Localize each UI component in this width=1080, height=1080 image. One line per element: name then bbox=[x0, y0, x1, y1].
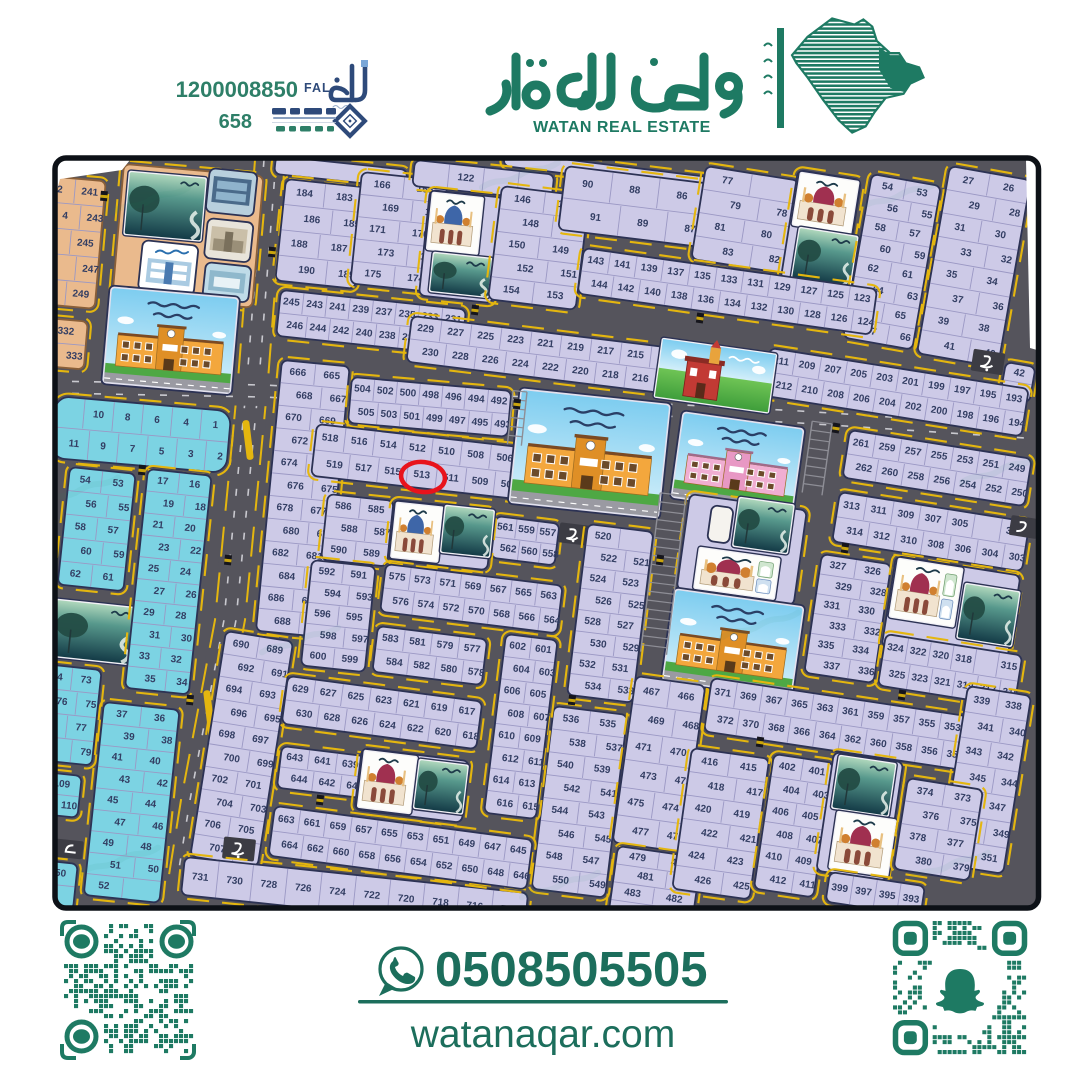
svg-text:56: 56 bbox=[85, 499, 98, 511]
svg-text:18: 18 bbox=[194, 502, 207, 514]
svg-text:569: 569 bbox=[464, 580, 482, 593]
svg-text:594: 594 bbox=[324, 588, 342, 601]
svg-text:573: 573 bbox=[413, 574, 431, 587]
svg-text:332: 332 bbox=[57, 326, 75, 338]
svg-text:571: 571 bbox=[439, 577, 457, 590]
svg-text:614: 614 bbox=[492, 774, 510, 787]
svg-text:651: 651 bbox=[432, 834, 450, 847]
svg-text:30: 30 bbox=[180, 633, 193, 645]
svg-text:52: 52 bbox=[98, 880, 111, 892]
svg-text:531: 531 bbox=[611, 662, 629, 675]
svg-text:625: 625 bbox=[347, 690, 365, 703]
svg-text:249: 249 bbox=[72, 288, 90, 300]
svg-text:241: 241 bbox=[81, 186, 99, 198]
svg-text:535: 535 bbox=[599, 718, 617, 731]
svg-text:584: 584 bbox=[385, 656, 403, 669]
svg-text:508: 508 bbox=[467, 449, 485, 462]
svg-text:603: 603 bbox=[538, 667, 556, 680]
svg-text:576: 576 bbox=[392, 596, 410, 609]
svg-text:512: 512 bbox=[408, 442, 426, 455]
svg-text:580: 580 bbox=[440, 663, 458, 676]
svg-text:730: 730 bbox=[226, 875, 244, 888]
svg-text:150: 150 bbox=[508, 239, 526, 252]
svg-text:678: 678 bbox=[276, 502, 294, 515]
svg-text:500: 500 bbox=[399, 387, 417, 399]
svg-text:664: 664 bbox=[280, 839, 298, 852]
svg-text:609: 609 bbox=[523, 733, 541, 746]
svg-text:35: 35 bbox=[144, 673, 157, 685]
svg-text:629: 629 bbox=[291, 683, 309, 696]
svg-text:57: 57 bbox=[107, 525, 120, 537]
svg-text:41: 41 bbox=[111, 752, 124, 764]
svg-text:670: 670 bbox=[285, 412, 303, 425]
svg-text:75: 75 bbox=[85, 699, 98, 711]
svg-text:183: 183 bbox=[335, 192, 353, 205]
svg-text:421: 421 bbox=[739, 833, 757, 846]
svg-text:590: 590 bbox=[330, 544, 348, 557]
svg-text:43: 43 bbox=[118, 774, 131, 786]
svg-text:25: 25 bbox=[147, 563, 160, 575]
svg-text:622: 622 bbox=[406, 723, 424, 736]
svg-text:50: 50 bbox=[147, 864, 160, 876]
svg-text:617: 617 bbox=[458, 705, 476, 718]
svg-text:595: 595 bbox=[345, 611, 363, 624]
svg-text:615: 615 bbox=[522, 801, 540, 814]
svg-text:630: 630 bbox=[295, 708, 313, 721]
svg-text:672: 672 bbox=[291, 435, 309, 448]
svg-text:620: 620 bbox=[434, 726, 452, 739]
svg-text:674: 674 bbox=[280, 457, 298, 470]
svg-text:538: 538 bbox=[568, 737, 586, 750]
svg-text:597: 597 bbox=[351, 633, 369, 646]
svg-text:549: 549 bbox=[588, 879, 606, 892]
svg-text:627: 627 bbox=[319, 687, 337, 700]
svg-text:649: 649 bbox=[458, 837, 476, 850]
svg-text:149: 149 bbox=[552, 244, 570, 257]
svg-text:501: 501 bbox=[403, 411, 421, 423]
svg-text:37: 37 bbox=[116, 709, 129, 721]
svg-text:605: 605 bbox=[529, 688, 547, 701]
svg-text:544: 544 bbox=[551, 805, 569, 818]
svg-text:1200008850: 1200008850 bbox=[176, 77, 298, 102]
svg-text:44: 44 bbox=[144, 798, 157, 810]
svg-text:665: 665 bbox=[323, 370, 341, 383]
svg-text:89: 89 bbox=[636, 218, 649, 230]
svg-text:86: 86 bbox=[676, 190, 689, 202]
svg-text:654: 654 bbox=[409, 856, 427, 869]
svg-text:616: 616 bbox=[496, 797, 514, 810]
svg-text:16: 16 bbox=[188, 479, 201, 491]
svg-text:688: 688 bbox=[274, 616, 292, 629]
svg-text:624: 624 bbox=[378, 719, 396, 732]
svg-text:229: 229 bbox=[417, 323, 435, 336]
svg-text:621: 621 bbox=[402, 698, 420, 711]
svg-text:426: 426 bbox=[694, 874, 712, 887]
svg-text:525: 525 bbox=[627, 599, 645, 612]
svg-text:492: 492 bbox=[490, 395, 508, 407]
svg-text:242: 242 bbox=[332, 325, 350, 338]
svg-text:656: 656 bbox=[384, 853, 402, 866]
svg-text:40: 40 bbox=[149, 756, 162, 768]
svg-text:78: 78 bbox=[775, 207, 788, 220]
svg-text:110: 110 bbox=[60, 800, 78, 813]
svg-text:548: 548 bbox=[545, 850, 563, 863]
svg-text:527: 527 bbox=[616, 620, 634, 633]
svg-text:578: 578 bbox=[467, 666, 485, 679]
svg-text:623: 623 bbox=[375, 694, 393, 707]
svg-text:22: 22 bbox=[190, 545, 203, 557]
svg-text:526: 526 bbox=[594, 595, 612, 608]
svg-text:watanaqar.com: watanaqar.com bbox=[410, 1013, 676, 1056]
svg-text:728: 728 bbox=[260, 879, 278, 892]
svg-text:122: 122 bbox=[457, 172, 475, 185]
svg-text:558: 558 bbox=[541, 548, 559, 561]
svg-text:514: 514 bbox=[379, 439, 397, 452]
svg-text:608: 608 bbox=[507, 708, 525, 721]
svg-text:224: 224 bbox=[511, 358, 529, 371]
svg-text:166: 166 bbox=[373, 179, 391, 192]
svg-text:422: 422 bbox=[700, 827, 718, 840]
svg-text:607: 607 bbox=[533, 711, 551, 724]
svg-text:513: 513 bbox=[413, 469, 431, 482]
svg-text:240: 240 bbox=[355, 327, 373, 340]
svg-text:415: 415 bbox=[739, 761, 757, 774]
svg-text:59: 59 bbox=[113, 549, 126, 561]
svg-text:536: 536 bbox=[562, 713, 580, 726]
svg-text:559: 559 bbox=[518, 524, 536, 537]
svg-text:502: 502 bbox=[376, 385, 394, 397]
svg-text:499: 499 bbox=[426, 413, 444, 425]
svg-text:599: 599 bbox=[341, 654, 359, 667]
svg-text:574: 574 bbox=[417, 599, 435, 612]
svg-text:650: 650 bbox=[461, 863, 479, 876]
svg-text:724: 724 bbox=[328, 886, 346, 899]
svg-text:510: 510 bbox=[438, 445, 456, 458]
svg-text:227: 227 bbox=[447, 326, 465, 339]
svg-text:11: 11 bbox=[68, 438, 80, 450]
svg-text:17: 17 bbox=[157, 476, 170, 488]
svg-text:659: 659 bbox=[329, 820, 347, 833]
svg-text:663: 663 bbox=[277, 814, 295, 827]
svg-text:243: 243 bbox=[306, 299, 324, 312]
svg-text:645: 645 bbox=[509, 844, 527, 857]
svg-text:216: 216 bbox=[631, 372, 649, 385]
svg-text:19: 19 bbox=[162, 498, 175, 510]
svg-text:33: 33 bbox=[138, 651, 151, 663]
svg-text:522: 522 bbox=[600, 553, 618, 566]
svg-text:684: 684 bbox=[278, 570, 296, 583]
svg-text:45: 45 bbox=[107, 794, 120, 806]
svg-text:528: 528 bbox=[584, 616, 602, 629]
svg-text:618: 618 bbox=[462, 730, 480, 743]
svg-text:151: 151 bbox=[560, 268, 578, 281]
svg-text:81: 81 bbox=[714, 221, 727, 234]
svg-text:146: 146 bbox=[513, 194, 531, 207]
svg-text:561: 561 bbox=[496, 521, 514, 534]
svg-text:568: 568 bbox=[493, 608, 511, 621]
svg-text:720: 720 bbox=[397, 893, 415, 906]
svg-text:666: 666 bbox=[289, 367, 307, 380]
svg-text:23: 23 bbox=[158, 542, 171, 554]
svg-text:653: 653 bbox=[406, 831, 424, 844]
svg-text:532: 532 bbox=[578, 658, 596, 671]
svg-text:219: 219 bbox=[567, 341, 585, 354]
svg-text:226: 226 bbox=[481, 354, 499, 367]
svg-text:217: 217 bbox=[597, 345, 615, 358]
svg-text:604: 604 bbox=[512, 663, 530, 676]
svg-text:657: 657 bbox=[355, 824, 373, 837]
svg-text:519: 519 bbox=[326, 459, 344, 472]
svg-text:647: 647 bbox=[483, 841, 501, 854]
svg-text:516: 516 bbox=[350, 435, 368, 448]
svg-text:726: 726 bbox=[294, 882, 312, 895]
svg-text:55: 55 bbox=[118, 502, 131, 514]
svg-text:39: 39 bbox=[123, 731, 136, 743]
svg-text:28: 28 bbox=[175, 610, 188, 622]
svg-text:148: 148 bbox=[522, 217, 540, 230]
svg-text:643: 643 bbox=[286, 752, 304, 765]
svg-text:585: 585 bbox=[367, 504, 385, 517]
svg-text:575: 575 bbox=[388, 571, 406, 584]
svg-text:530: 530 bbox=[589, 638, 607, 651]
svg-text:184: 184 bbox=[296, 187, 314, 200]
svg-text:38: 38 bbox=[161, 735, 174, 747]
svg-text:173: 173 bbox=[377, 247, 395, 260]
svg-text:498: 498 bbox=[422, 389, 440, 401]
svg-text:543: 543 bbox=[588, 809, 606, 822]
svg-text:628: 628 bbox=[323, 712, 341, 725]
svg-text:560: 560 bbox=[520, 545, 538, 558]
svg-text:529: 529 bbox=[622, 642, 640, 655]
svg-text:591: 591 bbox=[350, 569, 368, 582]
svg-text:425: 425 bbox=[732, 880, 750, 893]
svg-text:416: 416 bbox=[701, 756, 719, 769]
svg-text:547: 547 bbox=[582, 855, 600, 868]
svg-text:187: 187 bbox=[330, 242, 348, 255]
svg-text:505: 505 bbox=[357, 407, 375, 419]
svg-text:602: 602 bbox=[509, 640, 527, 653]
svg-text:77: 77 bbox=[75, 722, 88, 734]
svg-text:245: 245 bbox=[76, 237, 94, 249]
svg-text:32: 32 bbox=[170, 654, 183, 666]
svg-text:644: 644 bbox=[290, 773, 308, 786]
svg-text:612: 612 bbox=[501, 753, 519, 766]
svg-text:577: 577 bbox=[463, 643, 481, 656]
svg-text:419: 419 bbox=[733, 808, 751, 821]
svg-text:221: 221 bbox=[537, 338, 555, 351]
svg-text:FAL: FAL bbox=[304, 81, 331, 95]
svg-text:88: 88 bbox=[629, 184, 642, 196]
svg-text:534: 534 bbox=[584, 681, 602, 694]
svg-text:175: 175 bbox=[364, 268, 382, 281]
svg-text:626: 626 bbox=[351, 715, 369, 728]
svg-text:47: 47 bbox=[114, 817, 127, 829]
svg-text:565: 565 bbox=[514, 586, 532, 599]
svg-text:34: 34 bbox=[176, 677, 189, 689]
svg-text:610: 610 bbox=[498, 730, 516, 743]
svg-text:567: 567 bbox=[489, 583, 507, 596]
svg-text:WATAN REAL ESTATE: WATAN REAL ESTATE bbox=[533, 119, 711, 136]
svg-text:593: 593 bbox=[355, 591, 373, 604]
svg-text:566: 566 bbox=[518, 611, 536, 624]
svg-text:660: 660 bbox=[332, 846, 350, 859]
svg-text:572: 572 bbox=[442, 602, 460, 615]
svg-text:36: 36 bbox=[153, 713, 166, 725]
svg-text:509: 509 bbox=[471, 475, 489, 488]
svg-text:648: 648 bbox=[487, 866, 505, 879]
svg-text:223: 223 bbox=[507, 334, 525, 347]
svg-text:494: 494 bbox=[467, 393, 485, 405]
svg-text:613: 613 bbox=[518, 777, 536, 790]
svg-text:546: 546 bbox=[557, 828, 575, 841]
svg-text:10: 10 bbox=[92, 409, 104, 421]
svg-text:29: 29 bbox=[143, 607, 156, 619]
svg-text:668: 668 bbox=[295, 390, 313, 403]
svg-text:667: 667 bbox=[329, 393, 347, 406]
svg-text:49: 49 bbox=[102, 837, 115, 849]
svg-text:592: 592 bbox=[318, 566, 336, 579]
svg-text:540: 540 bbox=[556, 759, 574, 772]
svg-text:523: 523 bbox=[622, 577, 640, 590]
svg-text:246: 246 bbox=[286, 320, 304, 333]
svg-text:333: 333 bbox=[65, 350, 83, 362]
svg-text:680: 680 bbox=[282, 525, 300, 538]
svg-text:682: 682 bbox=[272, 547, 290, 560]
svg-text:583: 583 bbox=[381, 633, 399, 646]
svg-text:582: 582 bbox=[413, 660, 431, 673]
svg-text:586: 586 bbox=[334, 500, 352, 513]
svg-text:42: 42 bbox=[156, 778, 169, 790]
svg-text:243: 243 bbox=[86, 213, 104, 225]
svg-text:495: 495 bbox=[471, 417, 489, 429]
svg-text:611: 611 bbox=[527, 756, 545, 769]
svg-text:601: 601 bbox=[534, 643, 552, 656]
svg-text:570: 570 bbox=[467, 605, 485, 618]
svg-text:222: 222 bbox=[541, 361, 559, 374]
svg-text:642: 642 bbox=[318, 777, 336, 790]
svg-text:518: 518 bbox=[321, 432, 339, 445]
svg-text:557: 557 bbox=[539, 526, 557, 539]
svg-text:596: 596 bbox=[313, 608, 331, 621]
svg-text:220: 220 bbox=[571, 365, 589, 378]
svg-text:655: 655 bbox=[380, 827, 398, 840]
svg-text:241: 241 bbox=[329, 301, 347, 314]
svg-text:73: 73 bbox=[80, 674, 93, 686]
svg-text:722: 722 bbox=[363, 889, 381, 902]
svg-text:562: 562 bbox=[499, 543, 517, 556]
svg-text:244: 244 bbox=[309, 322, 327, 335]
svg-text:237: 237 bbox=[375, 306, 393, 319]
svg-text:517: 517 bbox=[355, 462, 373, 475]
svg-text:218: 218 bbox=[601, 369, 619, 382]
svg-text:238: 238 bbox=[378, 330, 396, 343]
svg-text:652: 652 bbox=[435, 860, 453, 873]
svg-text:521: 521 bbox=[632, 557, 650, 570]
svg-text:589: 589 bbox=[363, 548, 381, 561]
svg-text:646: 646 bbox=[512, 870, 530, 883]
svg-text:563: 563 bbox=[540, 590, 558, 603]
svg-text:0508505505: 0508505505 bbox=[435, 943, 708, 997]
svg-text:606: 606 bbox=[503, 685, 521, 698]
svg-text:503: 503 bbox=[380, 409, 398, 421]
svg-text:228: 228 bbox=[451, 350, 469, 363]
svg-text:90: 90 bbox=[581, 179, 594, 191]
svg-text:62: 62 bbox=[69, 568, 82, 580]
svg-text:686: 686 bbox=[267, 592, 285, 605]
svg-text:587: 587 bbox=[373, 527, 391, 540]
svg-text:27: 27 bbox=[153, 586, 166, 598]
svg-text:247: 247 bbox=[82, 264, 100, 276]
svg-text:245: 245 bbox=[282, 296, 300, 309]
svg-text:20: 20 bbox=[184, 523, 197, 535]
svg-text:79: 79 bbox=[80, 747, 93, 759]
svg-text:169: 169 bbox=[382, 202, 400, 215]
svg-text:186: 186 bbox=[303, 214, 321, 227]
svg-text:658: 658 bbox=[219, 111, 252, 133]
svg-text:26: 26 bbox=[185, 589, 198, 601]
svg-text:61: 61 bbox=[102, 572, 115, 584]
svg-text:658: 658 bbox=[358, 849, 376, 862]
svg-text:83: 83 bbox=[722, 246, 735, 259]
svg-text:230: 230 bbox=[421, 347, 439, 360]
svg-text:641: 641 bbox=[313, 755, 331, 768]
svg-text:539: 539 bbox=[593, 763, 611, 776]
svg-text:731: 731 bbox=[191, 871, 209, 884]
svg-text:496: 496 bbox=[445, 391, 463, 403]
svg-text:239: 239 bbox=[352, 304, 370, 317]
svg-text:21: 21 bbox=[152, 519, 165, 531]
svg-text:420: 420 bbox=[694, 803, 712, 816]
svg-text:581: 581 bbox=[409, 636, 427, 649]
svg-text:619: 619 bbox=[430, 701, 448, 714]
svg-text:564: 564 bbox=[543, 614, 561, 627]
svg-text:225: 225 bbox=[477, 330, 495, 343]
svg-text:676: 676 bbox=[287, 480, 305, 493]
svg-text:588: 588 bbox=[340, 523, 358, 536]
svg-text:171: 171 bbox=[369, 224, 387, 237]
svg-text:524: 524 bbox=[589, 573, 607, 586]
svg-text:600: 600 bbox=[309, 650, 327, 663]
svg-text:154: 154 bbox=[502, 284, 520, 297]
svg-text:153: 153 bbox=[546, 289, 564, 302]
svg-text:79: 79 bbox=[729, 200, 742, 213]
svg-text:152: 152 bbox=[516, 263, 534, 276]
svg-text:58: 58 bbox=[74, 521, 87, 533]
svg-text:188: 188 bbox=[290, 238, 308, 251]
svg-text:579: 579 bbox=[436, 639, 454, 652]
svg-text:661: 661 bbox=[303, 817, 321, 830]
svg-text:60: 60 bbox=[80, 546, 93, 558]
svg-text:91: 91 bbox=[589, 212, 602, 224]
svg-text:504: 504 bbox=[354, 383, 372, 395]
svg-text:46: 46 bbox=[152, 821, 165, 833]
svg-text:24: 24 bbox=[179, 566, 192, 578]
svg-text:80: 80 bbox=[760, 229, 773, 242]
svg-text:542: 542 bbox=[563, 783, 581, 796]
svg-text:662: 662 bbox=[306, 843, 324, 856]
svg-text:31: 31 bbox=[149, 630, 162, 642]
svg-text:520: 520 bbox=[594, 530, 612, 543]
svg-text:190: 190 bbox=[298, 265, 316, 278]
svg-text:77: 77 bbox=[721, 175, 734, 188]
svg-text:497: 497 bbox=[448, 415, 466, 427]
svg-text:215: 215 bbox=[627, 349, 645, 362]
